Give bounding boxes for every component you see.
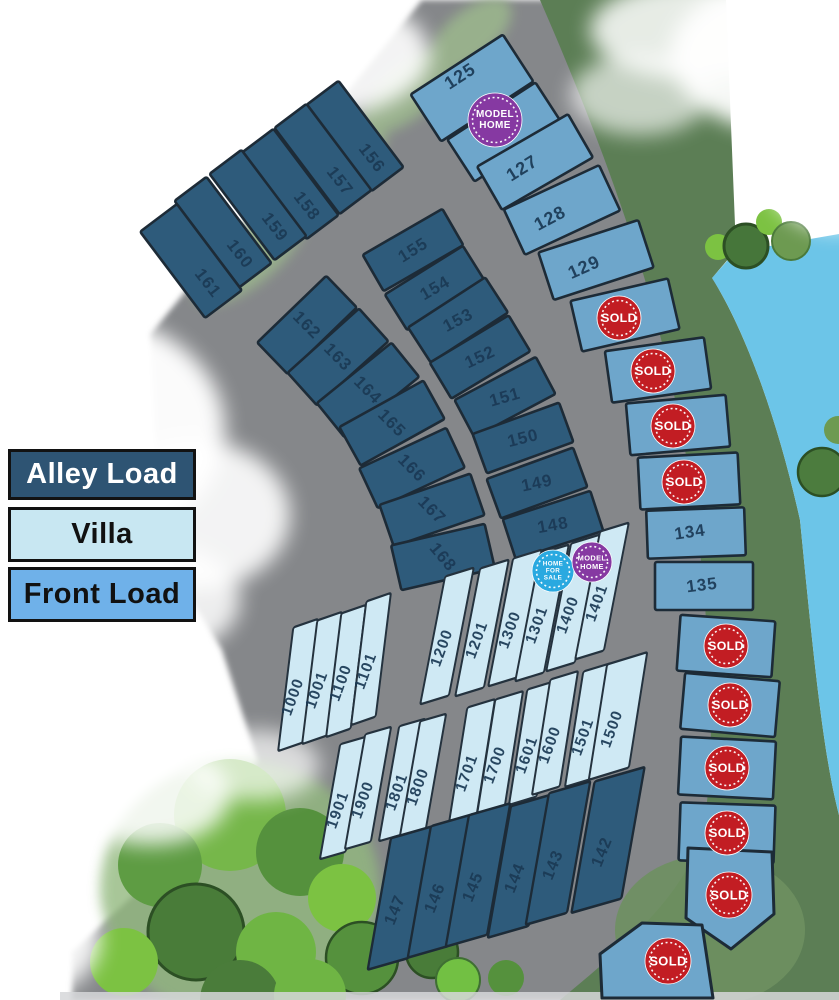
svg-text:SOLD: SOLD: [709, 826, 745, 840]
sold-badge[interactable]: SOLD: [662, 460, 706, 504]
legend-item-alley-load: Alley Load: [8, 449, 196, 500]
legend-label: Front Load: [24, 578, 180, 611]
sold-badge[interactable]: SOLD: [631, 349, 675, 393]
svg-text:HOME: HOME: [580, 562, 604, 571]
legend-item-front-load: Front Load: [8, 567, 196, 622]
legend-item-villa: Villa: [8, 507, 196, 562]
svg-text:SOLD: SOLD: [710, 888, 747, 903]
svg-text:SOLD: SOLD: [666, 475, 702, 489]
site-plan-map: 1561571581591601611621631641651661671681…: [0, 0, 839, 1000]
svg-text:HOME: HOME: [543, 560, 564, 567]
svg-text:MODEL: MODEL: [476, 109, 514, 120]
svg-text:SALE: SALE: [544, 575, 562, 582]
sold-badge[interactable]: SOLD: [704, 624, 748, 668]
model-badge[interactable]: MODELHOME: [572, 542, 612, 582]
legend-label: Alley Load: [26, 458, 178, 491]
lot-number: 135: [685, 574, 718, 597]
svg-text:SOLD: SOLD: [709, 761, 745, 775]
sale-badge[interactable]: HOMEFORSALE: [532, 550, 574, 592]
legend-label: Villa: [71, 518, 133, 551]
svg-text:SOLD: SOLD: [635, 364, 671, 378]
svg-text:SOLD: SOLD: [655, 419, 691, 433]
svg-text:FOR: FOR: [546, 568, 561, 575]
bottom-edge-strip: [60, 992, 839, 1000]
sold-badge[interactable]: SOLD: [645, 938, 691, 984]
svg-text:HOME: HOME: [479, 120, 511, 131]
svg-text:SOLD: SOLD: [708, 639, 744, 653]
map-canvas: 1561571581591601611621631641651661671681…: [0, 0, 839, 1000]
sold-badge[interactable]: SOLD: [706, 872, 752, 918]
sold-badge[interactable]: SOLD: [708, 683, 752, 727]
svg-text:SOLD: SOLD: [601, 311, 637, 325]
sold-badge[interactable]: SOLD: [597, 296, 641, 340]
sold-badge[interactable]: SOLD: [651, 404, 695, 448]
sold-badge[interactable]: SOLD: [705, 746, 749, 790]
model-badge[interactable]: MODELHOME: [468, 93, 522, 147]
svg-text:SOLD: SOLD: [712, 698, 748, 712]
svg-text:SOLD: SOLD: [649, 954, 686, 969]
sold-badge[interactable]: SOLD: [705, 811, 749, 855]
